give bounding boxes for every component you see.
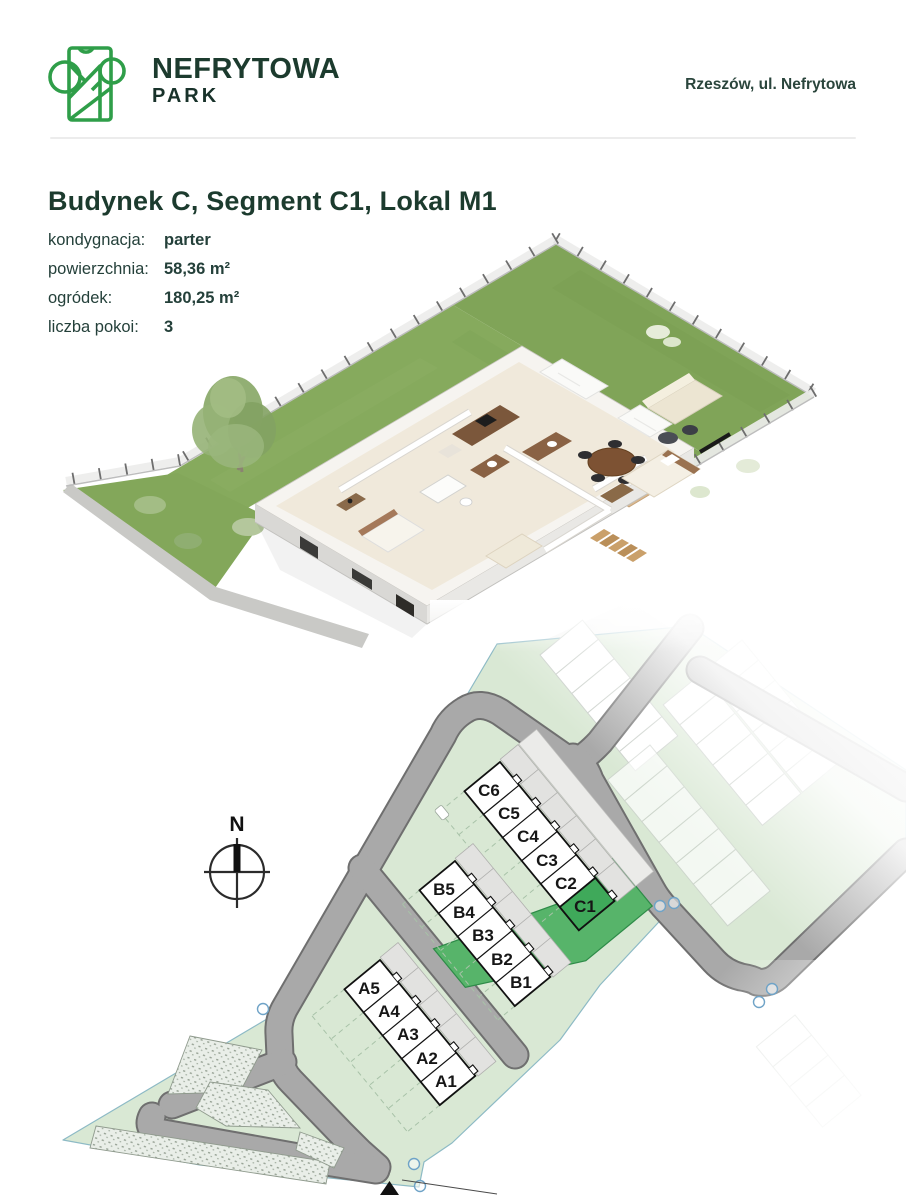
segment-label-b4[interactable]: B4	[453, 903, 475, 922]
segment-label-b1[interactable]: B1	[510, 973, 532, 992]
segment-label-a5[interactable]: A5	[358, 979, 380, 998]
fade-overlay-top	[430, 600, 906, 652]
compass: N	[204, 813, 270, 908]
segment-label-b2[interactable]: B2	[491, 950, 513, 969]
segment-label-a3[interactable]: A3	[397, 1025, 419, 1044]
segment-label-c4[interactable]: C4	[517, 827, 539, 846]
segment-label-c2[interactable]: C2	[555, 874, 577, 893]
segment-label-a4[interactable]: A4	[378, 1002, 400, 1021]
staircase	[590, 529, 647, 562]
segment-label-c5[interactable]: C5	[498, 804, 520, 823]
segment-label-c3[interactable]: C3	[536, 851, 558, 870]
segment-label-b5[interactable]: B5	[433, 880, 455, 899]
fade-overlay-bottom	[690, 960, 906, 1200]
plans-canvas: N C6 C5 C4 C3 C2 C1 B5 B4 B3 B2 B1 A5 A4…	[0, 0, 906, 1200]
compass-north-label: N	[229, 813, 244, 836]
segment-label-c1[interactable]: C1	[574, 897, 596, 916]
segment-label-a1[interactable]: A1	[435, 1072, 457, 1091]
site-plan: N C6 C5 C4 C3 C2 C1 B5 B4 B3 B2 B1 A5 A4…	[63, 590, 906, 1200]
segment-label-a2[interactable]: A2	[416, 1049, 438, 1068]
segment-label-c6[interactable]: C6	[478, 781, 500, 800]
segment-label-b3[interactable]: B3	[472, 926, 494, 945]
